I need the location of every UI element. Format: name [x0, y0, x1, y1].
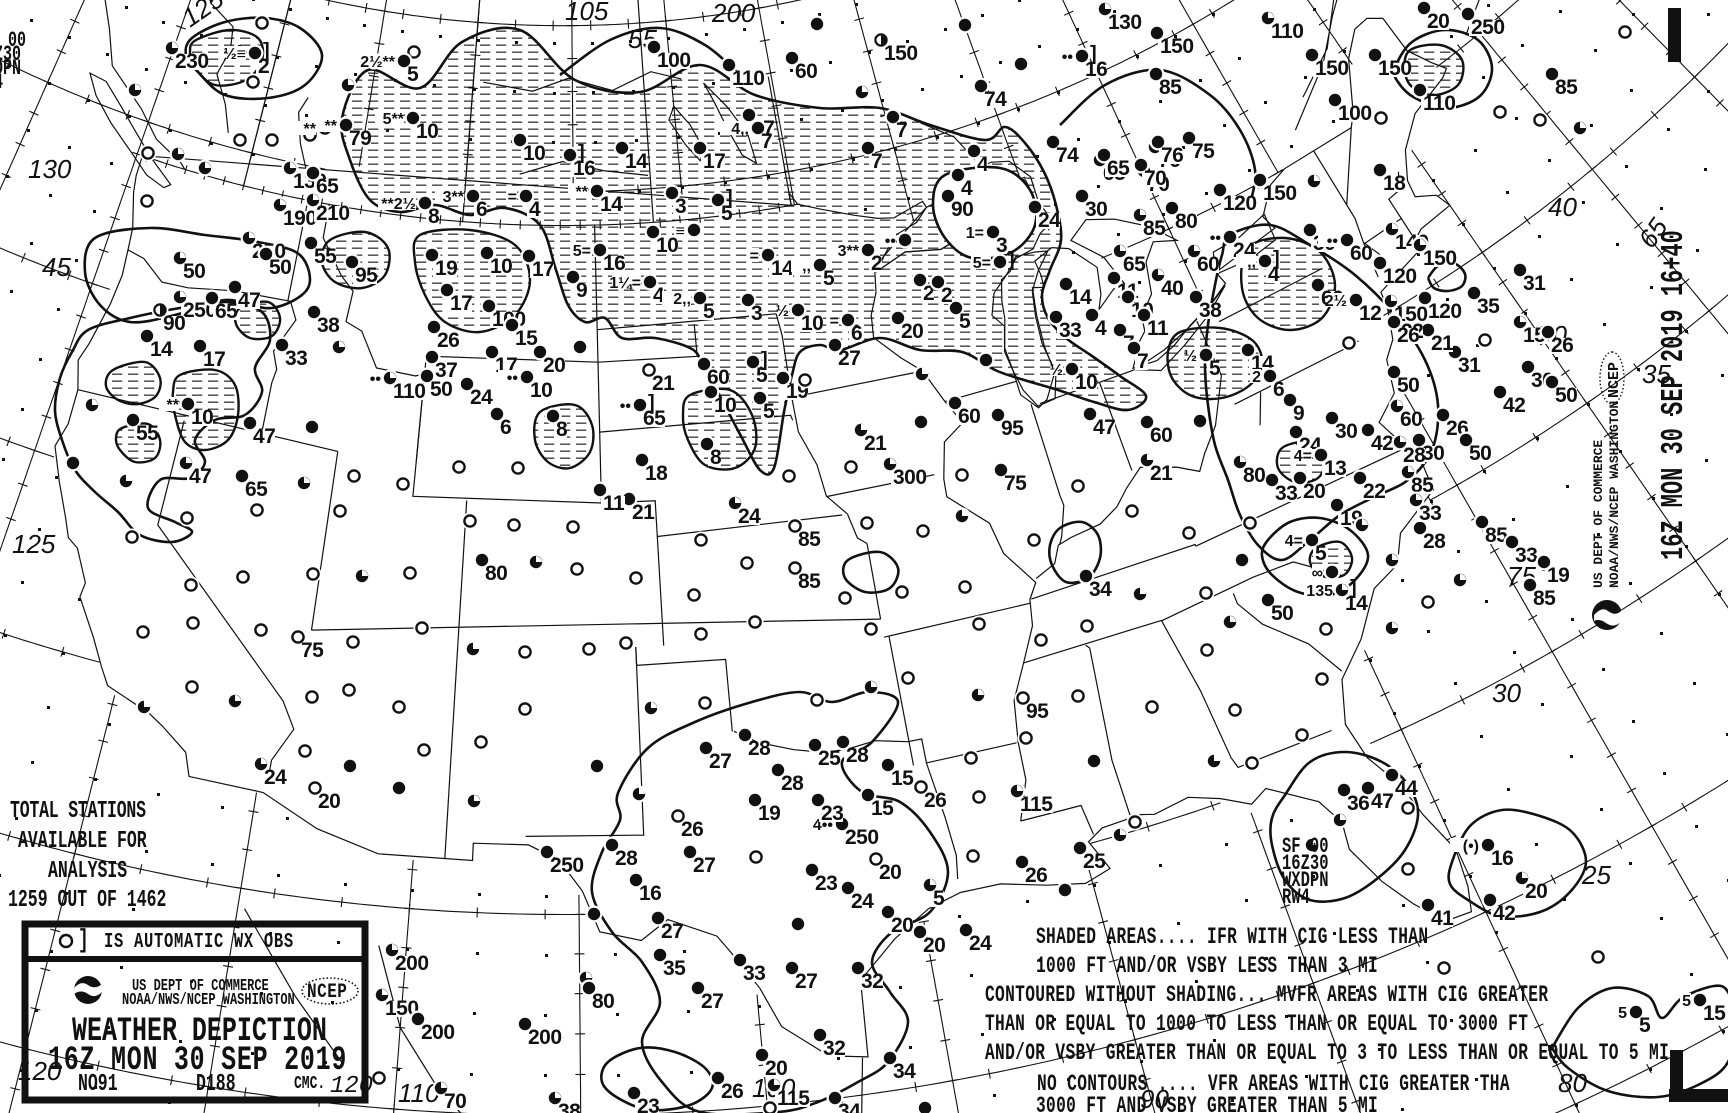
svg-text:4=: 4= [1285, 533, 1303, 550]
svg-text:••: •• [620, 398, 632, 415]
svg-text:8: 8 [428, 205, 440, 228]
svg-text:20: 20 [1525, 880, 1547, 903]
svg-text:4: 4 [961, 177, 973, 200]
svg-text:85: 85 [1555, 76, 1578, 99]
svg-text:125: 125 [12, 529, 56, 559]
svg-text:50: 50 [183, 260, 205, 283]
svg-text:65: 65 [1107, 157, 1130, 180]
svg-text:120: 120 [1428, 300, 1462, 323]
svg-text:150: 150 [1315, 57, 1349, 80]
svg-text:38: 38 [317, 314, 340, 337]
svg-text:50: 50 [1397, 374, 1419, 397]
svg-text:60: 60 [1150, 424, 1172, 447]
svg-text:••: •• [370, 371, 382, 388]
svg-text:14: 14 [625, 150, 648, 173]
svg-text:80: 80 [1558, 1068, 1587, 1098]
svg-text:AND/OR VSBY GREATER THAN OR EQ: AND/OR VSBY GREATER THAN OR EQUAL TO 3 T… [985, 1041, 1669, 1066]
svg-text:11: 11 [603, 492, 625, 515]
svg-text:60: 60 [795, 60, 817, 83]
svg-text:34: 34 [893, 1060, 916, 1083]
svg-text:100: 100 [657, 49, 691, 72]
svg-text:IS AUTOMATIC WX OBS: IS AUTOMATIC WX OBS [104, 929, 294, 954]
svg-text:28: 28 [781, 772, 804, 795]
svg-text:]: ] [263, 40, 270, 62]
svg-text:NCEP: NCEP [1606, 362, 1623, 398]
svg-text:NOAA/NWS/NCEP WASHINGTON: NOAA/NWS/NCEP WASHINGTON [122, 991, 295, 1009]
svg-text:34: 34 [1089, 578, 1112, 601]
svg-text:23: 23 [821, 802, 843, 825]
svg-text:70: 70 [1144, 167, 1166, 190]
svg-text:20: 20 [879, 861, 901, 884]
svg-text:33: 33 [285, 347, 307, 370]
svg-text:33: 33 [1515, 544, 1537, 567]
svg-text:21: 21 [652, 372, 675, 395]
svg-text:230: 230 [175, 50, 209, 73]
svg-text:42: 42 [1503, 394, 1525, 417]
svg-text:120: 120 [330, 1073, 373, 1100]
svg-text:15: 15 [1703, 1002, 1726, 1025]
svg-text:120: 120 [1223, 192, 1257, 215]
svg-text:210: 210 [316, 202, 350, 225]
svg-text:5: 5 [1682, 993, 1691, 1010]
svg-text:28: 28 [1423, 530, 1446, 553]
svg-text:31: 31 [1458, 354, 1481, 377]
svg-text:26: 26 [437, 329, 459, 352]
svg-text:7: 7 [871, 150, 882, 173]
svg-text:27: 27 [795, 970, 817, 993]
svg-text:]: ] [1090, 43, 1097, 65]
svg-text:42: 42 [1371, 432, 1393, 455]
svg-text:3: 3 [996, 234, 1007, 257]
svg-text:5: 5 [407, 63, 419, 86]
svg-text:24: 24 [264, 766, 287, 789]
svg-text:21: 21 [1150, 462, 1173, 485]
svg-text:12: 12 [1359, 302, 1381, 325]
svg-text:½: ½ [1184, 348, 1197, 365]
svg-text:=: = [830, 313, 839, 330]
svg-text:9: 9 [1293, 402, 1304, 425]
svg-text:27: 27 [709, 750, 731, 773]
svg-text:35: 35 [1477, 295, 1500, 318]
svg-text:25: 25 [1083, 850, 1106, 873]
svg-text:95: 95 [1001, 417, 1024, 440]
svg-text:50: 50 [1555, 384, 1577, 407]
svg-text:17: 17 [450, 292, 472, 315]
svg-text:40: 40 [1548, 192, 1577, 222]
svg-text:200: 200 [421, 1021, 455, 1044]
svg-text:9: 9 [576, 279, 587, 302]
svg-text:20: 20 [901, 320, 923, 343]
svg-text:15: 15 [891, 767, 914, 790]
svg-text:**2½: **2½ [381, 196, 416, 213]
svg-text:11: 11 [1147, 317, 1169, 340]
svg-text:5: 5 [703, 300, 715, 323]
svg-text:7: 7 [896, 119, 907, 142]
svg-text:]: ] [1273, 248, 1280, 270]
svg-text:5: 5 [763, 400, 775, 423]
svg-text:24: 24 [851, 890, 874, 913]
svg-text:26: 26 [721, 1080, 743, 1103]
svg-text:1¼=: 1¼= [609, 275, 641, 292]
svg-text:2,,: 2,, [673, 291, 691, 308]
svg-text:19: 19 [1547, 564, 1569, 587]
svg-text:50: 50 [1469, 442, 1491, 465]
svg-text:14: 14 [600, 193, 623, 216]
svg-text:½: ½ [1050, 362, 1063, 379]
svg-text:47: 47 [189, 465, 211, 488]
svg-text:18: 18 [1383, 172, 1406, 195]
svg-text:••: •• [1327, 233, 1339, 250]
svg-text:4: 4 [977, 153, 989, 176]
svg-text:85: 85 [1159, 76, 1182, 99]
svg-text:26: 26 [1025, 864, 1047, 887]
svg-text:5=: 5= [973, 255, 991, 272]
svg-text:2: 2 [941, 284, 952, 307]
svg-text:5**: 5** [383, 111, 405, 128]
svg-text:6: 6 [476, 198, 487, 221]
svg-text:32: 32 [861, 970, 883, 993]
svg-text:4,,: 4,, [731, 121, 749, 138]
svg-text:18: 18 [645, 462, 668, 485]
svg-text:5: 5 [1315, 542, 1327, 565]
svg-text:**: ** [576, 184, 589, 201]
svg-text:20: 20 [923, 934, 945, 957]
svg-text:24: 24 [470, 386, 493, 409]
svg-text:28: 28 [1403, 444, 1426, 467]
svg-text:5=: 5= [573, 243, 591, 260]
svg-text:**: ** [167, 397, 180, 414]
svg-text:20: 20 [1303, 480, 1325, 503]
svg-text:200: 200 [711, 0, 756, 28]
svg-text:26: 26 [924, 789, 946, 812]
svg-text:20: 20 [543, 354, 565, 377]
svg-text:24: 24 [1038, 209, 1061, 232]
svg-text:4: 4 [1095, 317, 1107, 340]
svg-text:27: 27 [838, 347, 860, 370]
svg-text:6: 6 [851, 322, 862, 345]
svg-text:33: 33 [1419, 502, 1441, 525]
svg-text:]: ] [78, 925, 89, 955]
svg-text:15: 15 [871, 797, 894, 820]
svg-text:250: 250 [1471, 16, 1505, 39]
svg-text:200: 200 [528, 1026, 562, 1049]
svg-text:50: 50 [1271, 602, 1293, 625]
svg-text:90: 90 [163, 312, 185, 335]
svg-text:17: 17 [703, 150, 725, 173]
svg-text:7: 7 [1137, 350, 1148, 373]
svg-text:22: 22 [1363, 480, 1385, 503]
svg-text:65: 65 [215, 300, 238, 323]
svg-text:10: 10 [416, 120, 438, 143]
svg-text:40: 40 [1161, 277, 1183, 300]
svg-text:41: 41 [1431, 907, 1454, 930]
svg-text:5: 5 [1209, 357, 1221, 380]
svg-text:150: 150 [884, 42, 918, 65]
svg-text:135: 135 [1306, 583, 1333, 600]
svg-text:60: 60 [958, 405, 980, 428]
svg-text:47: 47 [238, 289, 260, 312]
svg-text:10: 10 [530, 379, 552, 402]
svg-text:75: 75 [1004, 472, 1027, 495]
svg-text:70: 70 [444, 1090, 466, 1113]
svg-text:≡: ≡ [676, 223, 685, 240]
svg-text:80: 80 [1243, 464, 1265, 487]
svg-text:ANALYSIS: ANALYSIS [48, 858, 127, 885]
svg-text:100: 100 [1338, 102, 1372, 125]
svg-text:150: 150 [1378, 57, 1412, 80]
svg-text:28: 28 [615, 847, 638, 870]
svg-text:**: ** [325, 118, 338, 135]
svg-text:150: 150 [1160, 35, 1194, 58]
svg-text:20: 20 [318, 790, 340, 813]
svg-text:RW4: RW4 [1282, 884, 1310, 910]
svg-text:60: 60 [1350, 242, 1372, 265]
svg-text:2: 2 [1252, 369, 1261, 386]
svg-text:14: 14 [150, 338, 173, 361]
svg-text:85: 85 [1533, 587, 1556, 610]
svg-text:5: 5 [933, 887, 945, 910]
svg-text:10: 10 [523, 142, 545, 165]
svg-text:10: 10 [1075, 371, 1097, 394]
svg-text:80: 80 [592, 990, 614, 1013]
svg-text:110: 110 [732, 67, 764, 90]
svg-text:TOTAL STATIONS: TOTAL STATIONS [10, 798, 146, 825]
svg-text:19: 19 [435, 257, 457, 280]
svg-text:130: 130 [28, 154, 72, 184]
svg-text:47: 47 [1093, 416, 1115, 439]
svg-text:76: 76 [1161, 144, 1183, 167]
svg-text:79: 79 [349, 127, 371, 150]
svg-text:200: 200 [395, 952, 429, 975]
svg-text:THAN OR EQUAL TO 1000 TO LESS: THAN OR EQUAL TO 1000 TO LESS THAN OR EQ… [985, 1012, 1528, 1037]
svg-text:3**: 3** [443, 189, 465, 206]
svg-text:16: 16 [603, 252, 625, 275]
svg-text:NO91: NO91 [78, 1071, 118, 1098]
svg-text:13: 13 [1324, 457, 1346, 480]
svg-text:10: 10 [801, 312, 823, 335]
svg-text:]: ] [578, 142, 585, 164]
svg-text:AVAILABLE FOR: AVAILABLE FOR [18, 828, 147, 855]
svg-text:23: 23 [637, 1095, 659, 1113]
svg-text:,,: ,, [802, 258, 811, 275]
svg-text:115: 115 [1020, 793, 1053, 816]
svg-text:••: •• [507, 370, 519, 387]
svg-text:50: 50 [430, 378, 452, 401]
svg-text:**: ** [304, 121, 317, 138]
svg-text:190: 190 [283, 207, 317, 230]
svg-text:1259 OUT OF 1462: 1259 OUT OF 1462 [8, 887, 166, 914]
svg-text:]: ] [1008, 249, 1015, 271]
svg-text:33: 33 [1059, 319, 1081, 342]
svg-text:150: 150 [1263, 182, 1297, 205]
svg-text:19: 19 [758, 802, 780, 825]
svg-text:26: 26 [681, 818, 703, 841]
svg-text:30: 30 [1335, 420, 1357, 443]
svg-text:74: 74 [1056, 144, 1079, 167]
svg-text:24: 24 [738, 505, 761, 528]
svg-text:17: 17 [203, 348, 225, 371]
svg-text:10: 10 [191, 406, 213, 429]
svg-text:28: 28 [748, 737, 771, 760]
svg-text:21: 21 [864, 432, 887, 455]
svg-text:10: 10 [490, 255, 512, 278]
svg-text:4: 4 [0, 69, 3, 95]
svg-text:26: 26 [1397, 324, 1419, 347]
svg-text:250: 250 [550, 854, 584, 877]
svg-text:3: 3 [675, 195, 686, 218]
svg-text:1=: 1= [966, 225, 984, 242]
svg-text:110: 110 [398, 1078, 440, 1108]
svg-text:14: 14 [1069, 286, 1092, 309]
svg-text:NCEP: NCEP [307, 982, 347, 1004]
svg-text:2: 2 [871, 252, 882, 275]
svg-text:150: 150 [1423, 247, 1457, 270]
svg-text:5: 5 [1639, 1014, 1651, 1037]
svg-text:110: 110 [393, 380, 425, 403]
svg-text:6: 6 [500, 416, 511, 439]
svg-text:55: 55 [136, 422, 159, 445]
svg-text:23: 23 [815, 872, 837, 895]
svg-text:••: •• [885, 233, 897, 250]
svg-text:30: 30 [1085, 198, 1107, 221]
svg-text:10: 10 [714, 394, 736, 417]
svg-text:]: ] [761, 349, 768, 371]
svg-text:31: 31 [1523, 272, 1546, 295]
svg-text:80: 80 [1175, 210, 1197, 233]
svg-text:DPN: DPN [0, 55, 21, 81]
svg-text:300: 300 [893, 466, 927, 489]
svg-text:3000 FT AND VSBY GREATER THAN: 3000 FT AND VSBY GREATER THAN 5 MI [1036, 1094, 1378, 1113]
svg-text:130: 130 [1108, 11, 1142, 34]
svg-text:120: 120 [1383, 265, 1417, 288]
svg-text:5: 5 [959, 310, 971, 333]
svg-text:3**: 3** [838, 243, 860, 260]
svg-text:47: 47 [253, 425, 275, 448]
svg-text:110: 110 [1271, 20, 1303, 43]
svg-text:20: 20 [1427, 10, 1449, 33]
svg-text:42: 42 [1493, 902, 1515, 925]
svg-text:½: ½ [776, 303, 789, 320]
svg-text:5: 5 [1618, 1005, 1627, 1022]
svg-text:••: •• [1062, 49, 1074, 66]
svg-text:∞: ∞ [1312, 565, 1323, 582]
svg-text:95: 95 [1026, 700, 1049, 723]
svg-text:34: 34 [838, 1100, 861, 1113]
svg-text:14: 14 [771, 257, 794, 280]
svg-text:CONTOURED WITHOUT SHADING... M: CONTOURED WITHOUT SHADING... MVFR AREAS … [985, 983, 1548, 1008]
svg-text:2½: 2½ [1325, 293, 1347, 310]
svg-text:32: 32 [823, 1037, 845, 1060]
svg-text:20: 20 [765, 1057, 787, 1080]
svg-text:47: 47 [1371, 790, 1393, 813]
svg-text:NOAA/NWS/NCEP WASHINGTON: NOAA/NWS/NCEP WASHINGTON [1607, 401, 1622, 588]
svg-text:65: 65 [245, 478, 268, 501]
svg-text:(•): (•) [1463, 838, 1479, 855]
svg-text:75: 75 [301, 639, 324, 662]
svg-text:2½**: 2½** [360, 54, 395, 71]
svg-text:65: 65 [1123, 253, 1146, 276]
svg-text:115: 115 [777, 1087, 810, 1110]
svg-text:=: = [750, 248, 759, 265]
svg-text:250: 250 [845, 826, 879, 849]
svg-text:60: 60 [1400, 408, 1422, 431]
svg-text:8: 8 [710, 446, 722, 469]
svg-text:30: 30 [1492, 678, 1521, 708]
svg-text:CMC.: CMC. [294, 1073, 325, 1094]
svg-text:16: 16 [1491, 847, 1513, 870]
svg-text:85: 85 [1143, 217, 1166, 240]
svg-text:45: 45 [42, 252, 71, 282]
svg-text:28: 28 [846, 744, 869, 767]
svg-text:3: 3 [751, 302, 762, 325]
svg-text:7: 7 [761, 130, 772, 153]
svg-text:24: 24 [969, 932, 992, 955]
svg-text:16Z MON 30 SEP 2019 16+40: 16Z MON 30 SEP 2019 16+40 [1658, 230, 1693, 560]
svg-text:75: 75 [1192, 140, 1215, 163]
svg-text:US DEPT OF COMMERCE: US DEPT OF COMMERCE [1591, 440, 1606, 588]
svg-text:25: 25 [1581, 860, 1611, 890]
svg-text:44: 44 [1395, 777, 1418, 800]
svg-text:80: 80 [485, 562, 507, 585]
svg-text:••: •• [1210, 230, 1222, 247]
svg-text:25: 25 [818, 747, 841, 770]
svg-text:1000 FT AND/OR VSBY LESS THAN: 1000 FT AND/OR VSBY LESS THAN 3 MI [1036, 954, 1378, 979]
svg-text:38: 38 [558, 1100, 581, 1113]
svg-text:38: 38 [1199, 299, 1222, 322]
svg-text:]: ] [1350, 577, 1357, 599]
svg-text:85: 85 [798, 570, 821, 593]
svg-text:26: 26 [1551, 334, 1573, 357]
svg-text:5: 5 [823, 267, 835, 290]
svg-text:105: 105 [565, 0, 609, 26]
svg-text:60: 60 [1197, 253, 1219, 276]
svg-text:33: 33 [1275, 482, 1297, 505]
svg-text:74: 74 [984, 88, 1007, 111]
svg-text:90: 90 [951, 198, 973, 221]
svg-text:110: 110 [1423, 92, 1455, 115]
svg-text:4=: 4= [1294, 448, 1312, 465]
svg-text:33: 33 [743, 962, 765, 985]
svg-text:27: 27 [701, 990, 723, 1013]
svg-text:95: 95 [355, 264, 378, 287]
svg-text:=: = [508, 189, 517, 206]
svg-text:17: 17 [532, 258, 554, 281]
svg-text:27: 27 [693, 854, 715, 877]
svg-text:D188: D188 [196, 1071, 236, 1098]
svg-text:4: 4 [529, 198, 541, 221]
svg-text:]: ] [648, 392, 655, 414]
svg-text:21: 21 [632, 501, 655, 524]
svg-text:½≡: ½≡ [223, 46, 246, 63]
svg-text:35: 35 [663, 957, 686, 980]
svg-text:50: 50 [269, 256, 291, 279]
svg-text:85: 85 [798, 528, 821, 551]
svg-text:20: 20 [891, 914, 913, 937]
svg-text:16: 16 [639, 882, 661, 905]
svg-text:27: 27 [661, 920, 683, 943]
svg-text:21: 21 [1431, 332, 1454, 355]
svg-text:]: ] [726, 187, 733, 209]
svg-text:,,: ,, [1247, 254, 1256, 271]
svg-text:SHADED AREAS.... IFR WITH CIG: SHADED AREAS.... IFR WITH CIG LESS THAN [1036, 925, 1428, 950]
svg-text:55: 55 [314, 245, 337, 268]
svg-text:8: 8 [556, 418, 568, 441]
